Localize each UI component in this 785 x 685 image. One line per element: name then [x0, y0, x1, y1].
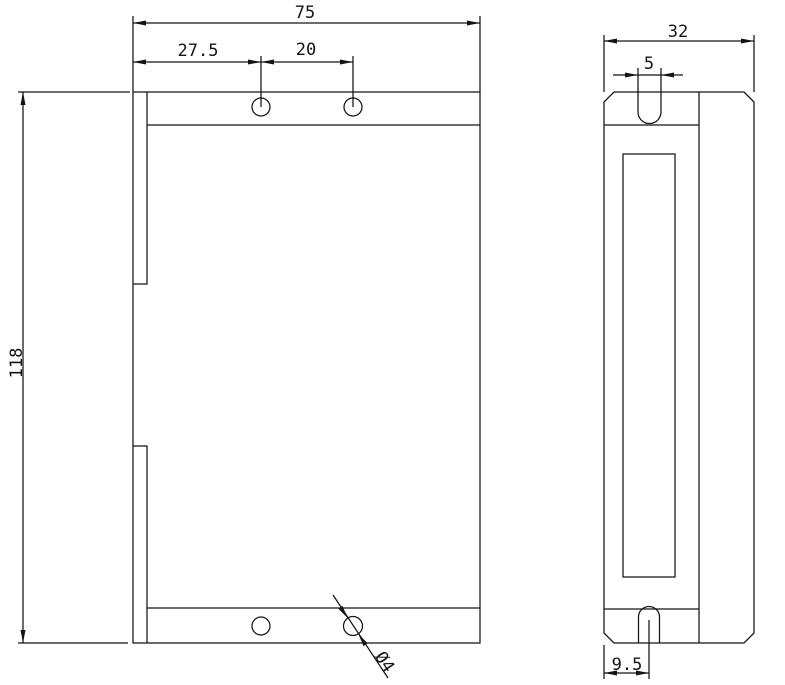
arrowhead [248, 60, 261, 65]
dim-label-width: 75 [295, 3, 315, 23]
side-label-recess [623, 154, 675, 577]
side-dimensions: 32 5 9.5 [604, 22, 754, 679]
arrowhead [604, 39, 617, 44]
front-flange-edge-lower [133, 446, 147, 643]
dim-label-height: 118 [7, 348, 27, 379]
arrowhead [133, 60, 146, 65]
mounting-hole-bottom-left [252, 617, 270, 635]
side-view [604, 68, 754, 679]
dim-label-slot-offset: 9.5 [612, 655, 643, 675]
dimension-drawing: 75 27.5 20 118 Ø4 [0, 0, 785, 685]
dim-label-hole-diameter: Ø4 [370, 648, 398, 676]
arrowhead [21, 630, 26, 643]
technical-drawing-canvas: 75 27.5 20 118 Ø4 [0, 0, 785, 685]
arrowhead [340, 60, 353, 65]
top-slot-round-bottom [638, 112, 661, 124]
arrowhead [467, 21, 480, 26]
front-dimensions: 75 27.5 20 118 Ø4 [7, 3, 480, 678]
arrowhead [261, 60, 274, 65]
dim-label-depth: 32 [668, 22, 688, 42]
arrowhead [625, 73, 638, 78]
arrowhead [133, 21, 146, 26]
arrowhead [741, 39, 754, 44]
side-outline [604, 92, 754, 643]
front-outline [133, 92, 480, 643]
front-view [133, 56, 480, 643]
dim-label-hole-pitch: 20 [296, 40, 316, 60]
dim-label-hole-offset: 27.5 [178, 41, 219, 61]
arrowhead [661, 73, 674, 78]
front-flange-edge-upper [133, 92, 147, 284]
arrowhead [21, 92, 26, 105]
dim-label-slot-width: 5 [644, 54, 654, 74]
